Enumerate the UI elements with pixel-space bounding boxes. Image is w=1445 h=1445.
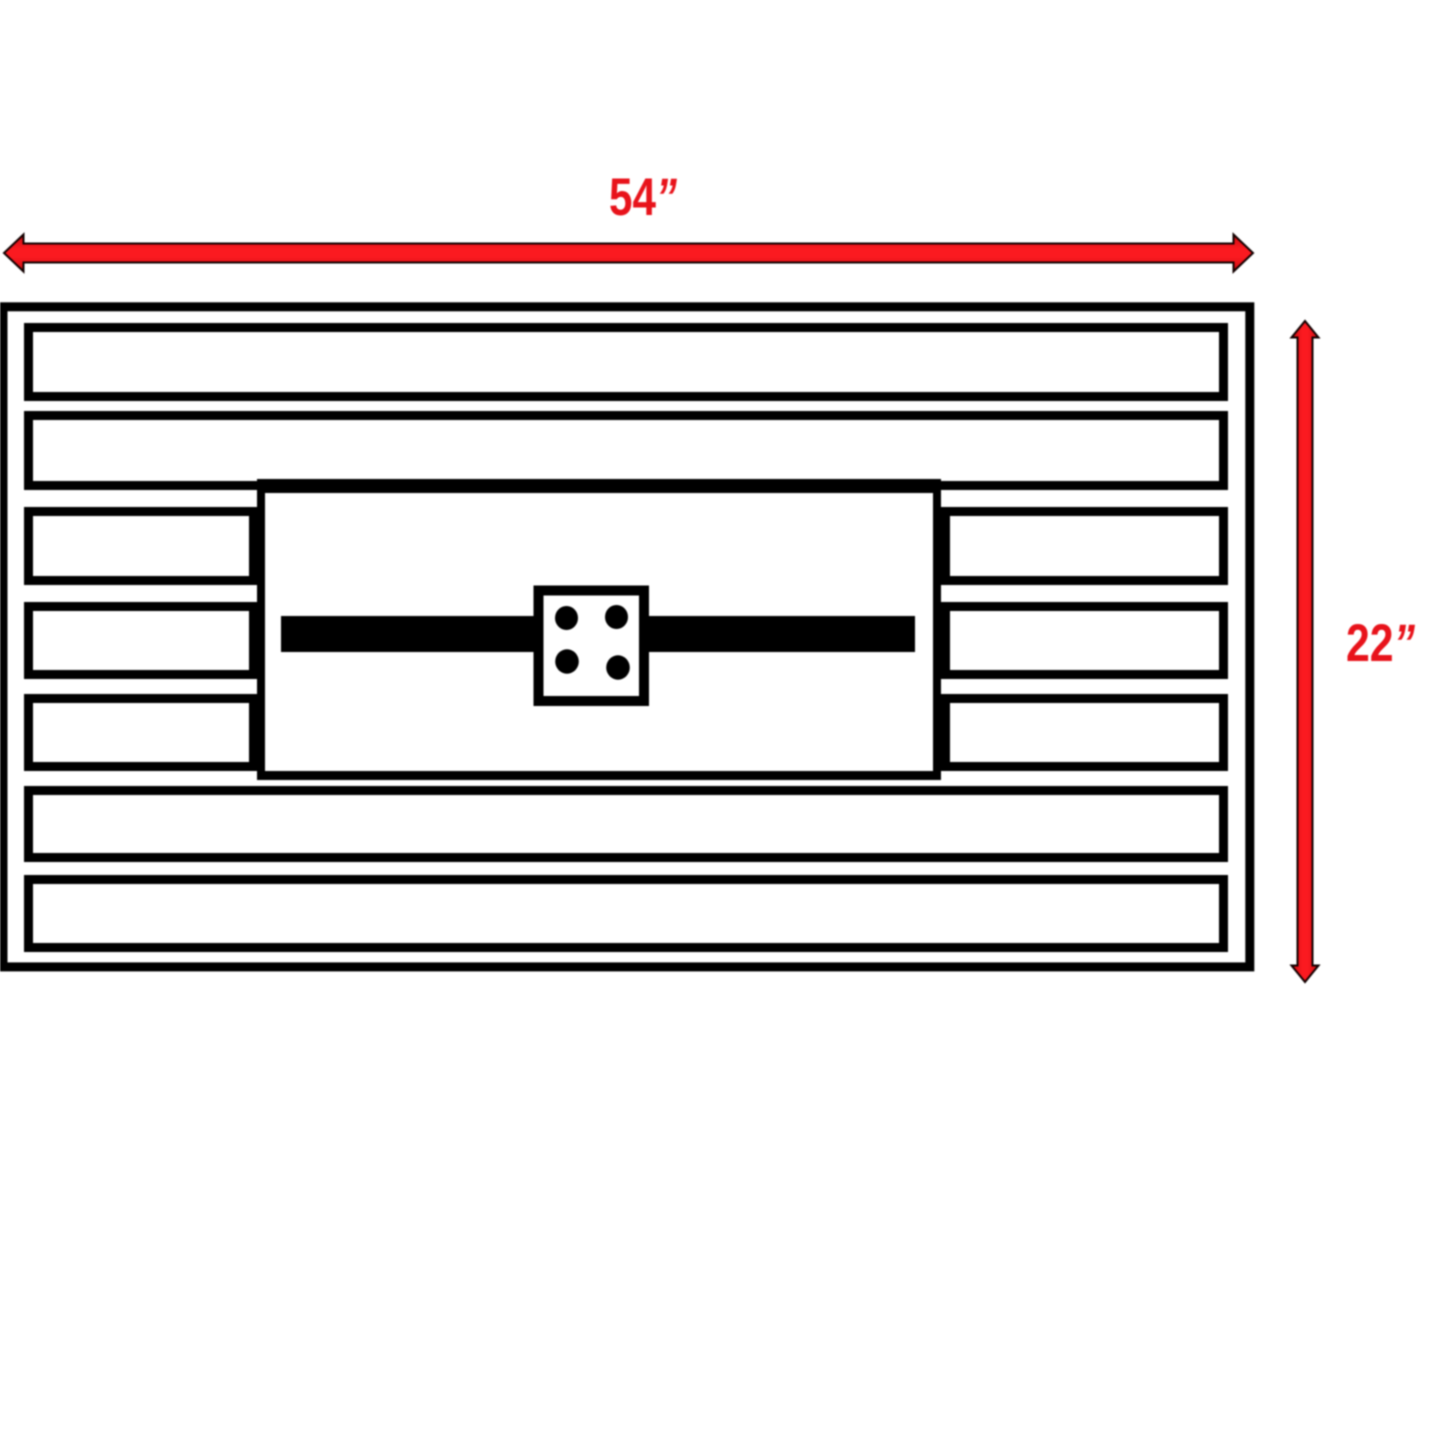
svg-text:22”: 22” xyxy=(1346,614,1415,673)
svg-text:54”: 54” xyxy=(609,168,677,227)
